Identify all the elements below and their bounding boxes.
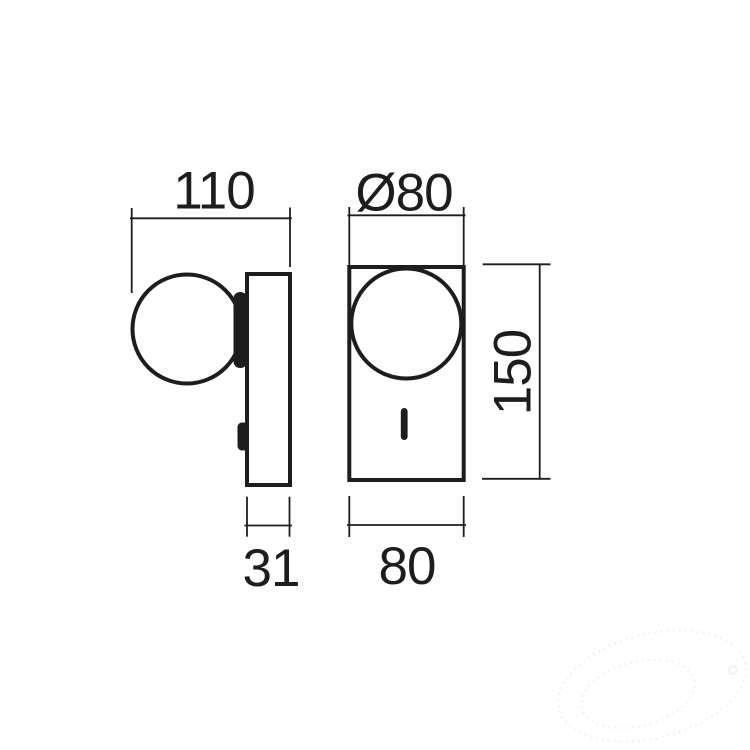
dim-31-label: 31 bbox=[243, 539, 300, 598]
side-globe-outline bbox=[133, 275, 242, 384]
dim-150-label: 150 bbox=[484, 330, 543, 415]
dimension-body-width: 80 bbox=[347, 496, 466, 596]
watermark-outer-swirl bbox=[546, 612, 750, 750]
front-body-outline bbox=[349, 267, 463, 480]
dimension-globe-diameter: Ø80 bbox=[348, 164, 466, 266]
front-switch-knob bbox=[401, 408, 408, 440]
dimension-drawing-svg: 110 Ø80 150 31 80 bbox=[0, 0, 750, 750]
side-view bbox=[133, 274, 291, 485]
dimension-body-height: 150 bbox=[482, 264, 551, 479]
side-switch-knob bbox=[238, 423, 249, 451]
watermark-inner-swirl bbox=[574, 649, 702, 739]
dim-80-label: 80 bbox=[379, 537, 436, 596]
side-globe-connector bbox=[234, 292, 248, 368]
watermark-dot bbox=[729, 666, 737, 674]
drawing-canvas: 110 Ø80 150 31 80 bbox=[0, 0, 750, 750]
side-wall-plate bbox=[247, 274, 290, 485]
dim-110-label: 110 bbox=[173, 162, 255, 221]
front-view bbox=[349, 267, 463, 480]
watermark-logo bbox=[546, 612, 750, 750]
dim-d80-label: Ø80 bbox=[355, 164, 452, 223]
dimension-wall-plate-depth: 31 bbox=[243, 497, 300, 598]
